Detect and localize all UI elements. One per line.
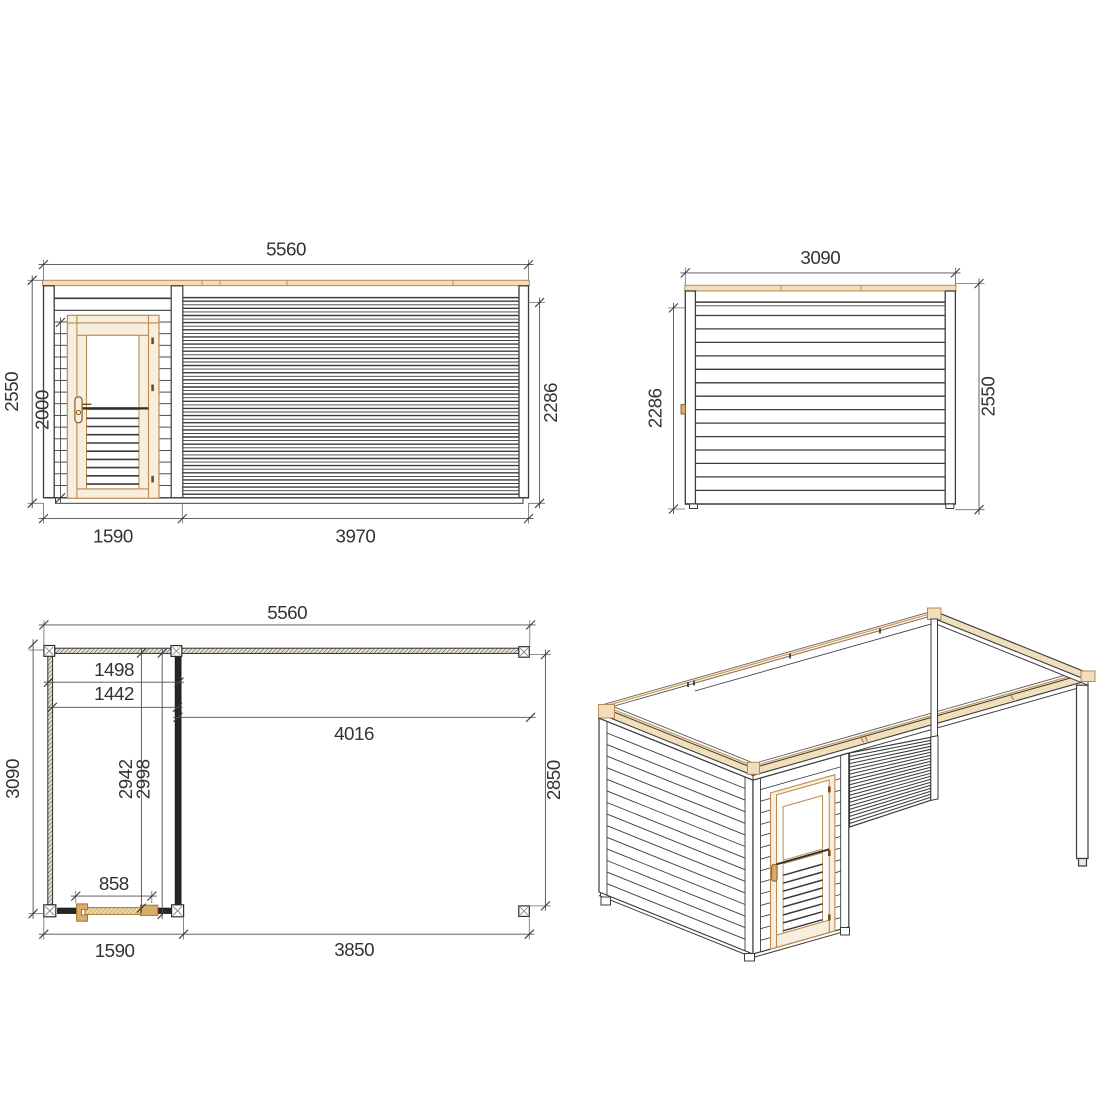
svg-text:3090: 3090: [800, 247, 840, 268]
svg-text:1590: 1590: [93, 526, 133, 547]
svg-text:2286: 2286: [645, 388, 666, 428]
svg-text:858: 858: [99, 873, 129, 894]
svg-text:4016: 4016: [334, 723, 374, 744]
svg-text:2550: 2550: [1, 372, 22, 412]
svg-text:3970: 3970: [336, 526, 376, 547]
svg-text:2998: 2998: [133, 759, 154, 799]
svg-text:1498: 1498: [94, 659, 134, 680]
svg-text:2550: 2550: [978, 377, 999, 417]
svg-text:2850: 2850: [543, 760, 564, 800]
svg-text:5560: 5560: [267, 602, 307, 623]
svg-text:3850: 3850: [334, 939, 374, 960]
svg-text:1590: 1590: [95, 940, 135, 961]
svg-text:2286: 2286: [540, 383, 561, 423]
svg-text:1442: 1442: [94, 683, 134, 704]
svg-text:3090: 3090: [2, 759, 23, 799]
svg-text:2000: 2000: [32, 390, 53, 430]
svg-text:5560: 5560: [266, 239, 306, 260]
